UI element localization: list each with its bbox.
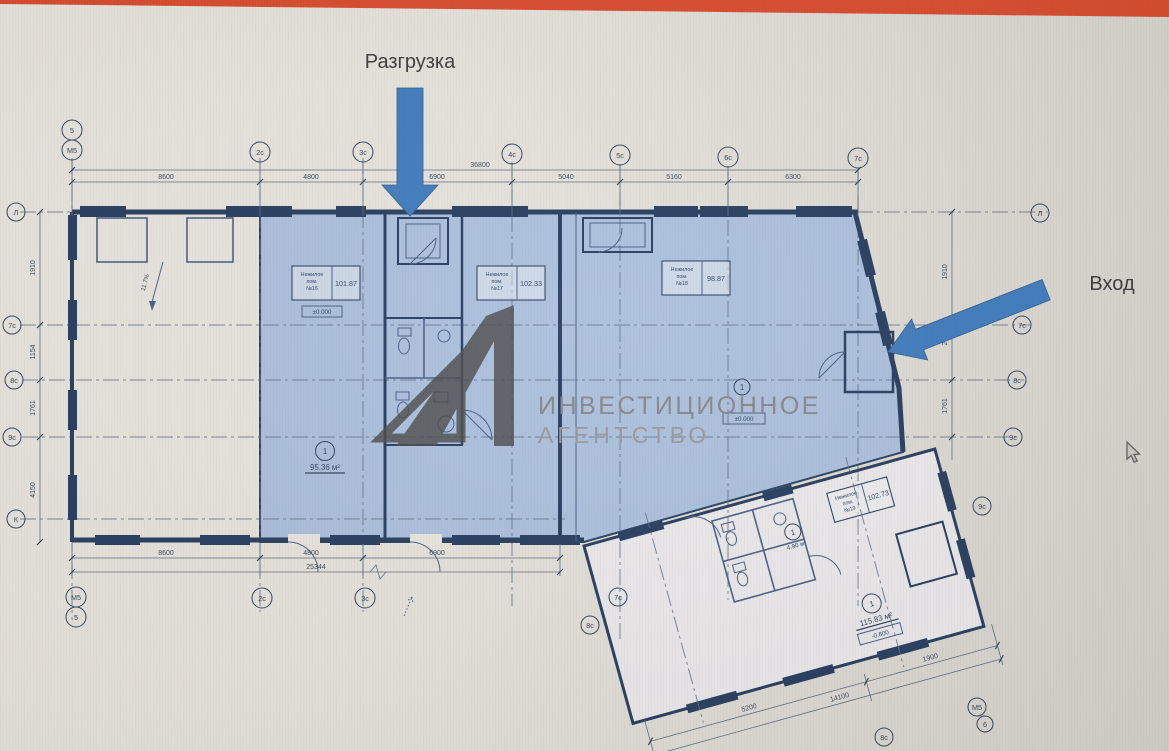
svg-text:М5: М5 — [972, 703, 982, 712]
floor-plan-photo: 11.7% Нежилое пом. №19 1 — [0, 0, 1169, 751]
svg-text:5: 5 — [74, 613, 78, 622]
svg-text:98.87: 98.87 — [707, 274, 725, 283]
svg-text:5: 5 — [70, 126, 74, 135]
watermark-text-line2: АГЕНТСТВО — [538, 422, 710, 448]
bottom-overall-dim: 25344 — [306, 564, 326, 571]
watermark-text-line1: ИНВЕСТИЦИОННОЕ — [538, 392, 821, 420]
ramp-slope-label: 11.7% — [140, 273, 151, 292]
svg-text:Нежилое: Нежилое — [671, 267, 694, 273]
floor-plan-svg: 11.7% Нежилое пом. №19 1 — [0, 0, 1169, 751]
svg-text:Л: Л — [14, 208, 19, 217]
svg-text:9с: 9с — [8, 433, 16, 442]
svg-text:5с: 5с — [616, 151, 624, 160]
svg-text:1154: 1154 — [30, 344, 37, 359]
svg-text:8с: 8с — [586, 621, 594, 630]
svg-text:К: К — [14, 515, 19, 524]
svg-text:102.33: 102.33 — [520, 279, 542, 288]
unloading-arrow-icon — [382, 88, 438, 216]
svg-text:7с: 7с — [614, 593, 622, 602]
svg-text:1761: 1761 — [30, 400, 37, 416]
svg-text:101.87: 101.87 — [335, 279, 357, 288]
mouse-cursor-icon — [1127, 442, 1139, 462]
svg-text:3с: 3с — [361, 594, 369, 603]
left-hall-interior: 11.7% — [97, 218, 233, 311]
svg-text:пом.: пом. — [676, 274, 687, 280]
unloading-label: Разгрузка — [365, 51, 456, 73]
svg-text:Л: Л — [1038, 209, 1043, 218]
svg-text:№17: №17 — [491, 286, 503, 292]
svg-text:8600: 8600 — [158, 550, 174, 557]
room-18-zone-number: 1 — [740, 383, 744, 392]
svg-text:1761: 1761 — [942, 398, 949, 414]
overall-width-dim: 36800 — [470, 162, 490, 169]
svg-text:№18: №18 — [676, 281, 688, 287]
svg-text:М5: М5 — [71, 593, 81, 602]
svg-text:№16: №16 — [306, 286, 318, 292]
svg-text:Нежилое: Нежилое — [486, 272, 509, 278]
entrance-arrow-icon — [880, 269, 1054, 372]
svg-text:9с: 9с — [978, 502, 986, 511]
room-16-label-box: Нежилое пом. №16 101.87 — [292, 266, 360, 300]
entrance-label: Вход — [1089, 273, 1135, 295]
north-marker-icon — [404, 597, 413, 616]
svg-text:8600: 8600 — [158, 174, 174, 181]
svg-text:Нежилое: Нежилое — [301, 272, 324, 278]
svg-text:3с: 3с — [359, 148, 367, 157]
svg-text:5160: 5160 — [666, 174, 682, 181]
svg-text:6с: 6с — [724, 153, 732, 162]
svg-text:1910: 1910 — [30, 260, 37, 276]
svg-text:7с: 7с — [854, 154, 862, 163]
svg-text:8с: 8с — [1013, 376, 1021, 385]
axis-markers-left: Л 7с 8с 9с К — [3, 203, 25, 528]
svg-text:7с: 7с — [8, 321, 16, 330]
svg-text:2с: 2с — [256, 148, 264, 157]
svg-text:9с: 9с — [1009, 433, 1017, 442]
screenshot-photo: 11.7% Нежилое пом. №19 1 — [0, 0, 1169, 751]
svg-text:пом.: пом. — [306, 279, 317, 285]
svg-text:2с: 2с — [258, 594, 266, 603]
svg-text:6900: 6900 — [429, 550, 445, 557]
svg-text:4150: 4150 — [30, 482, 37, 498]
svg-text:4с: 4с — [508, 150, 516, 159]
svg-text:14100: 14100 — [829, 692, 850, 704]
svg-text:6: 6 — [983, 720, 987, 729]
top-accent-bar — [0, 0, 1169, 17]
svg-text:7с: 7с — [1018, 321, 1026, 330]
room-16-zone-area: 95.36 м² — [310, 463, 340, 472]
room-16-level-mark: ±0.000 — [313, 309, 332, 316]
svg-text:8с: 8с — [880, 733, 888, 742]
axis-markers-bottom: М5 5 2с 3с — [66, 587, 375, 627]
svg-text:4800: 4800 — [303, 550, 319, 557]
svg-text:8с: 8с — [10, 376, 18, 385]
svg-text:1910: 1910 — [942, 264, 949, 280]
svg-text:4800: 4800 — [303, 174, 319, 181]
axis-markers-top: 5 М5 2с 3с 4с 5с 6с 7с — [62, 120, 868, 168]
svg-text:6300: 6300 — [785, 174, 801, 181]
room-18-label-box: Нежилое пом. №18 98.87 — [662, 261, 730, 295]
room-17-label-box: Нежилое пом. №17 102.33 — [477, 266, 545, 300]
svg-text:6900: 6900 — [429, 174, 445, 181]
svg-text:пом.: пом. — [491, 279, 502, 285]
room-16-zone-number: 1 — [323, 447, 327, 456]
svg-text:5040: 5040 — [558, 174, 574, 181]
svg-text:М5: М5 — [67, 146, 77, 155]
left-dimension-column: 1910 1154 1761 4150 — [30, 209, 43, 545]
